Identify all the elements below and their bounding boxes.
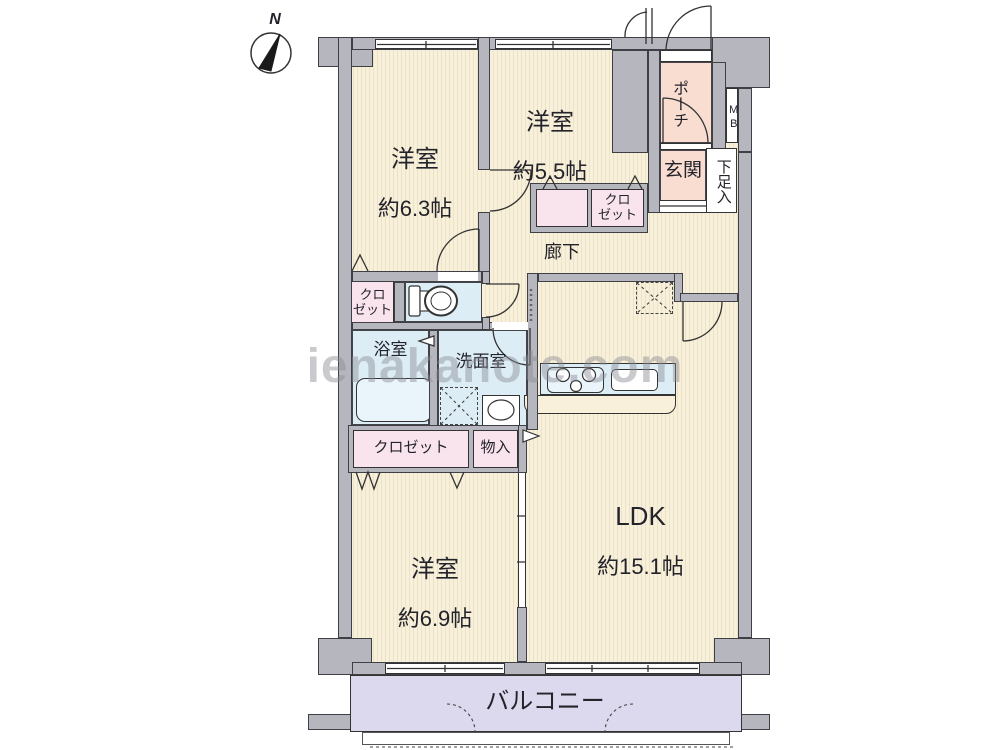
ldk-label: LDK 約15.1帖 xyxy=(558,480,723,600)
bedroom-nw-name: 洋室 xyxy=(352,145,478,175)
bedroom-n-label: 洋室 約5.5帖 xyxy=(486,88,614,206)
washroom-door-opening xyxy=(492,322,528,330)
window-top-right xyxy=(495,39,612,49)
bedroom-sw-name: 洋室 xyxy=(355,555,515,585)
bedroom-n-name: 洋室 xyxy=(486,108,614,138)
kitchen-counter-lower xyxy=(524,395,676,414)
meter-box-label: MB xyxy=(726,96,740,140)
entry-threshold xyxy=(660,50,712,62)
compass-icon xyxy=(251,33,291,73)
wall-closetw-toilet xyxy=(394,282,405,322)
toilet-room xyxy=(405,282,482,322)
porch-label: ポーチ xyxy=(668,70,688,138)
partition-sliding xyxy=(518,473,526,607)
wall-entrance-left xyxy=(648,50,660,213)
porch-entrance-threshold xyxy=(660,143,712,150)
refrigerator-space xyxy=(636,282,673,314)
washbasin xyxy=(482,395,520,427)
window-bottom-left xyxy=(385,663,505,674)
bedroom-sw-label: 洋室 約6.9帖 xyxy=(355,535,515,653)
floor-plan: N 洋室 約6.3帖 洋室 約5.5帖 洋室 約6.9帖 LDK 約15.1帖 … xyxy=(0,0,1000,750)
window-top-left xyxy=(375,39,478,49)
shoe-cabinet-label: 下足入 xyxy=(713,152,732,210)
wall-partition-solid xyxy=(517,607,527,662)
closet-north-label: クロ ゼット xyxy=(591,193,644,223)
entry-child-arc xyxy=(625,12,647,37)
closet-west-label: クロ ゼット xyxy=(351,288,394,318)
bedroom-nw-door-opening xyxy=(438,272,478,281)
wall-ldk-top-right xyxy=(680,293,738,302)
ldk-size: 約15.1帖 xyxy=(558,553,723,581)
entrance-step xyxy=(660,200,706,213)
wall-ldk-top-left xyxy=(538,273,683,282)
bedroom-n-size: 約5.5帖 xyxy=(486,158,614,186)
watermark-text: ienakanote.com xyxy=(280,337,710,397)
wall-right xyxy=(738,152,752,638)
hallway-label: 廊下 xyxy=(540,241,584,264)
bedroom-nw-size: 約6.3帖 xyxy=(352,195,478,223)
wall-toilet-stub-bottom xyxy=(482,317,490,330)
bedroom-nw-label: 洋室 約6.3帖 xyxy=(352,125,478,243)
ldk-name: LDK xyxy=(558,500,723,533)
balcony-label: バルコニー xyxy=(460,687,630,717)
closet-south-label: クロゼット xyxy=(353,439,469,458)
wall-right-upper xyxy=(738,88,752,152)
window-bottom-right xyxy=(545,663,700,674)
wall-toilet-stub-top xyxy=(482,271,490,284)
wall-porch-right xyxy=(712,62,726,152)
balcony-railing xyxy=(362,732,730,745)
wall-chunk-ne xyxy=(612,50,648,153)
bedroom-sw-size: 約6.9帖 xyxy=(355,605,515,633)
storage-label: 物入 xyxy=(473,439,518,458)
compass-north-label: N xyxy=(263,10,287,30)
wall-storage-right xyxy=(518,425,527,473)
entrance-label: 玄関 xyxy=(660,159,706,183)
